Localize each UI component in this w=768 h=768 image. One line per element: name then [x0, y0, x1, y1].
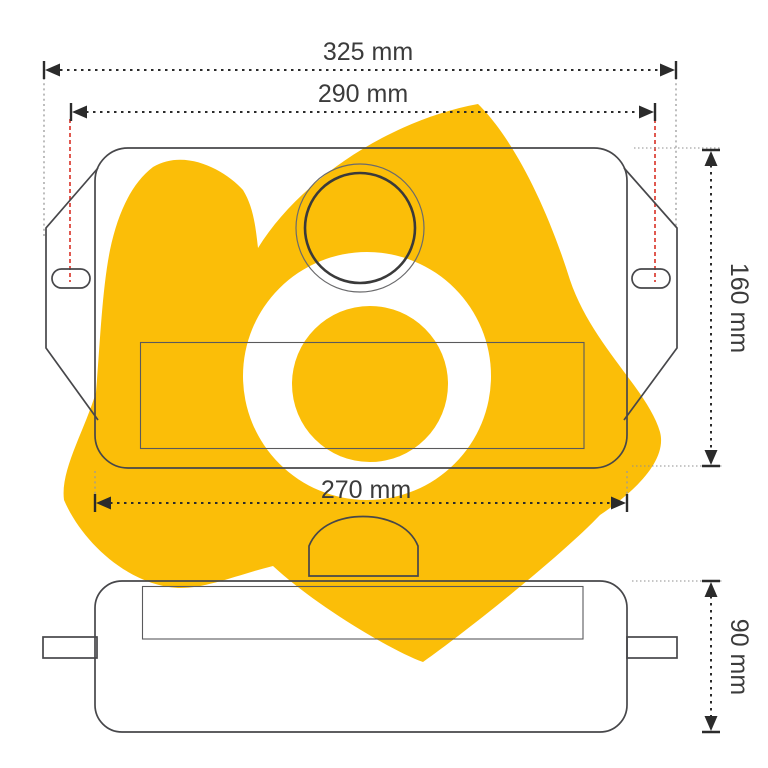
dimension-label-body-height: 160 mm [725, 263, 753, 353]
swirl-logo-center-disk [292, 306, 448, 462]
dimension-label-overall-width: 325 mm [323, 38, 413, 66]
side-tab-left [43, 637, 97, 658]
side-tab-right [627, 637, 677, 658]
dimension-label-body-width: 270 mm [321, 476, 411, 504]
swirl-logo-watermark [64, 104, 662, 662]
drawing-svg: 325 mm 290 mm 160 mm 270 mm 90 mm [0, 0, 768, 768]
dimension-body-height: 160 mm [702, 150, 753, 466]
dimension-slot-spacing: 290 mm [71, 80, 655, 121]
arrowhead-down [705, 716, 718, 731]
arrowhead-down [705, 450, 718, 465]
arrowhead-right [660, 64, 675, 77]
dimension-label-side-height: 90 mm [725, 619, 753, 695]
technical-drawing-canvas: 325 mm 290 mm 160 mm 270 mm 90 mm [0, 0, 768, 768]
dimension-side-height: 90 mm [702, 581, 753, 732]
mounting-ear-left [46, 168, 98, 420]
mounting-slot-left [52, 269, 90, 288]
arrowhead-up [705, 151, 718, 166]
arrowhead-left [72, 106, 87, 119]
arrowhead-up [705, 582, 718, 597]
dimension-label-slot-spacing: 290 mm [318, 80, 408, 108]
mounting-ear-right [624, 168, 677, 420]
mounting-slot-right [632, 269, 670, 288]
arrowhead-left [45, 64, 60, 77]
arrowhead-right [639, 106, 654, 119]
dimension-overall-width: 325 mm [44, 38, 676, 79]
